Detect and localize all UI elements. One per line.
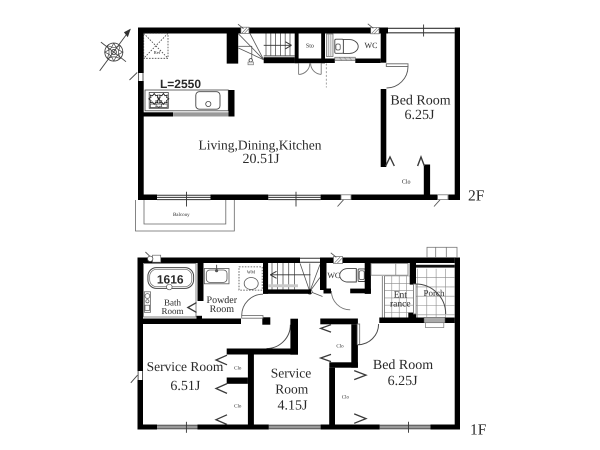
svg-text:WM: WM — [247, 270, 255, 275]
svg-text:Clo: Clo — [402, 178, 411, 185]
svg-text:Room: Room — [161, 306, 183, 316]
svg-text:Bed Room: Bed Room — [373, 358, 433, 373]
svg-text:Sto: Sto — [306, 44, 314, 50]
svg-text:Room: Room — [210, 304, 235, 315]
svg-text:Clo: Clo — [234, 366, 242, 372]
svg-text:rance: rance — [390, 300, 411, 310]
svg-text:Ref: Ref — [154, 50, 161, 55]
svg-text:Service: Service — [271, 366, 311, 381]
svg-text:4.15J: 4.15J — [278, 398, 309, 413]
svg-text:6.51J: 6.51J — [170, 379, 201, 394]
svg-text:2F: 2F — [468, 188, 485, 205]
svg-text:L=2550: L=2550 — [160, 77, 201, 91]
svg-text:Service Room: Service Room — [147, 359, 224, 374]
svg-text:Clo: Clo — [342, 394, 350, 400]
svg-text:WC: WC — [327, 271, 340, 280]
svg-text:6.25J: 6.25J — [405, 108, 436, 123]
svg-text:Porch: Porch — [424, 288, 445, 298]
svg-text:Living,Dining,Kitchen: Living,Dining,Kitchen — [199, 138, 322, 153]
svg-text:6.25J: 6.25J — [388, 374, 419, 389]
svg-text:Bed Room: Bed Room — [390, 94, 450, 109]
svg-text:Room: Room — [275, 382, 309, 397]
svg-text:WC: WC — [365, 41, 378, 50]
svg-text:Clo: Clo — [234, 403, 242, 409]
svg-text:Balcony: Balcony — [173, 212, 190, 218]
svg-text:Clo: Clo — [336, 344, 344, 350]
svg-text:20.51J: 20.51J — [243, 152, 281, 167]
svg-text:1F: 1F — [470, 422, 487, 439]
